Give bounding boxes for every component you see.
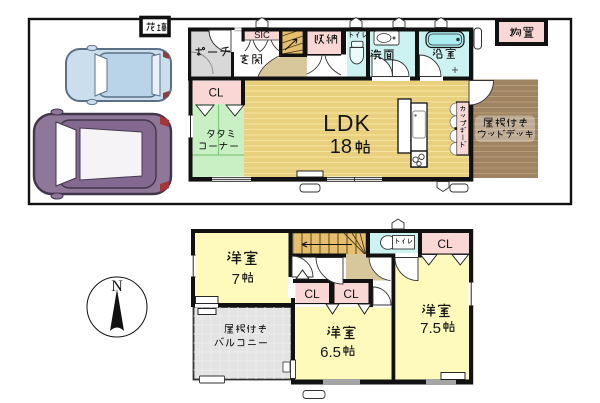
- svg-text:7: 7: [232, 271, 240, 288]
- svg-text:18: 18: [330, 136, 352, 158]
- svg-text:6.5: 6.5: [320, 344, 341, 361]
- svg-text:N: N: [111, 278, 123, 295]
- svg-text:SIC: SIC: [254, 30, 270, 41]
- svg-text:CL: CL: [343, 287, 359, 301]
- svg-text:LDK: LDK: [323, 110, 371, 136]
- svg-text:CL: CL: [304, 287, 320, 301]
- svg-text:CL: CL: [209, 88, 224, 100]
- svg-text:7.5: 7.5: [420, 320, 441, 337]
- svg-text:CL: CL: [437, 237, 453, 251]
